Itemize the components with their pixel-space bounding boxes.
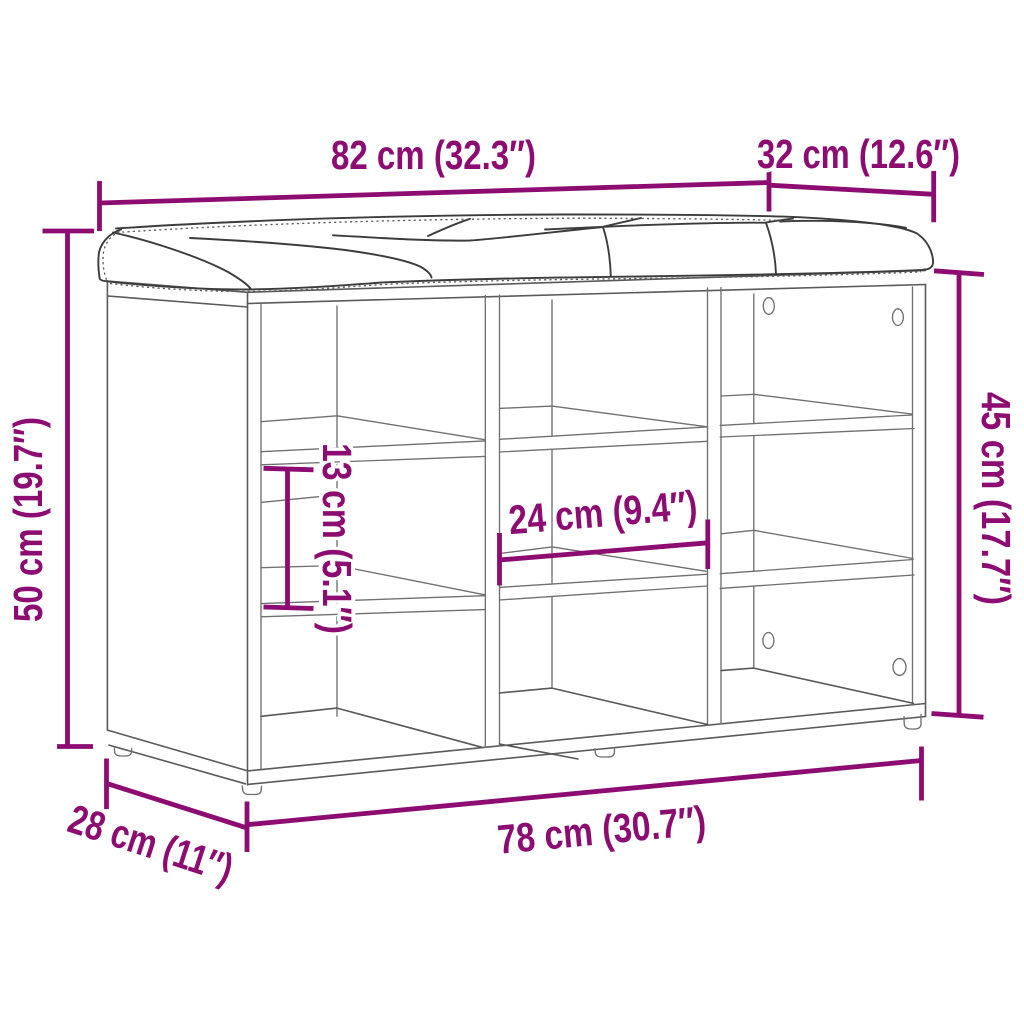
svg-text:82 cm (32.3″): 82 cm (32.3″) — [331, 132, 536, 178]
svg-text:50 cm (19.7″): 50 cm (19.7″) — [5, 417, 51, 622]
svg-text:13 cm (5.1″): 13 cm (5.1″) — [314, 443, 360, 634]
svg-text:32 cm (12.6″): 32 cm (12.6″) — [757, 131, 960, 177]
svg-text:45 cm (17.7″): 45 cm (17.7″) — [973, 392, 1019, 605]
